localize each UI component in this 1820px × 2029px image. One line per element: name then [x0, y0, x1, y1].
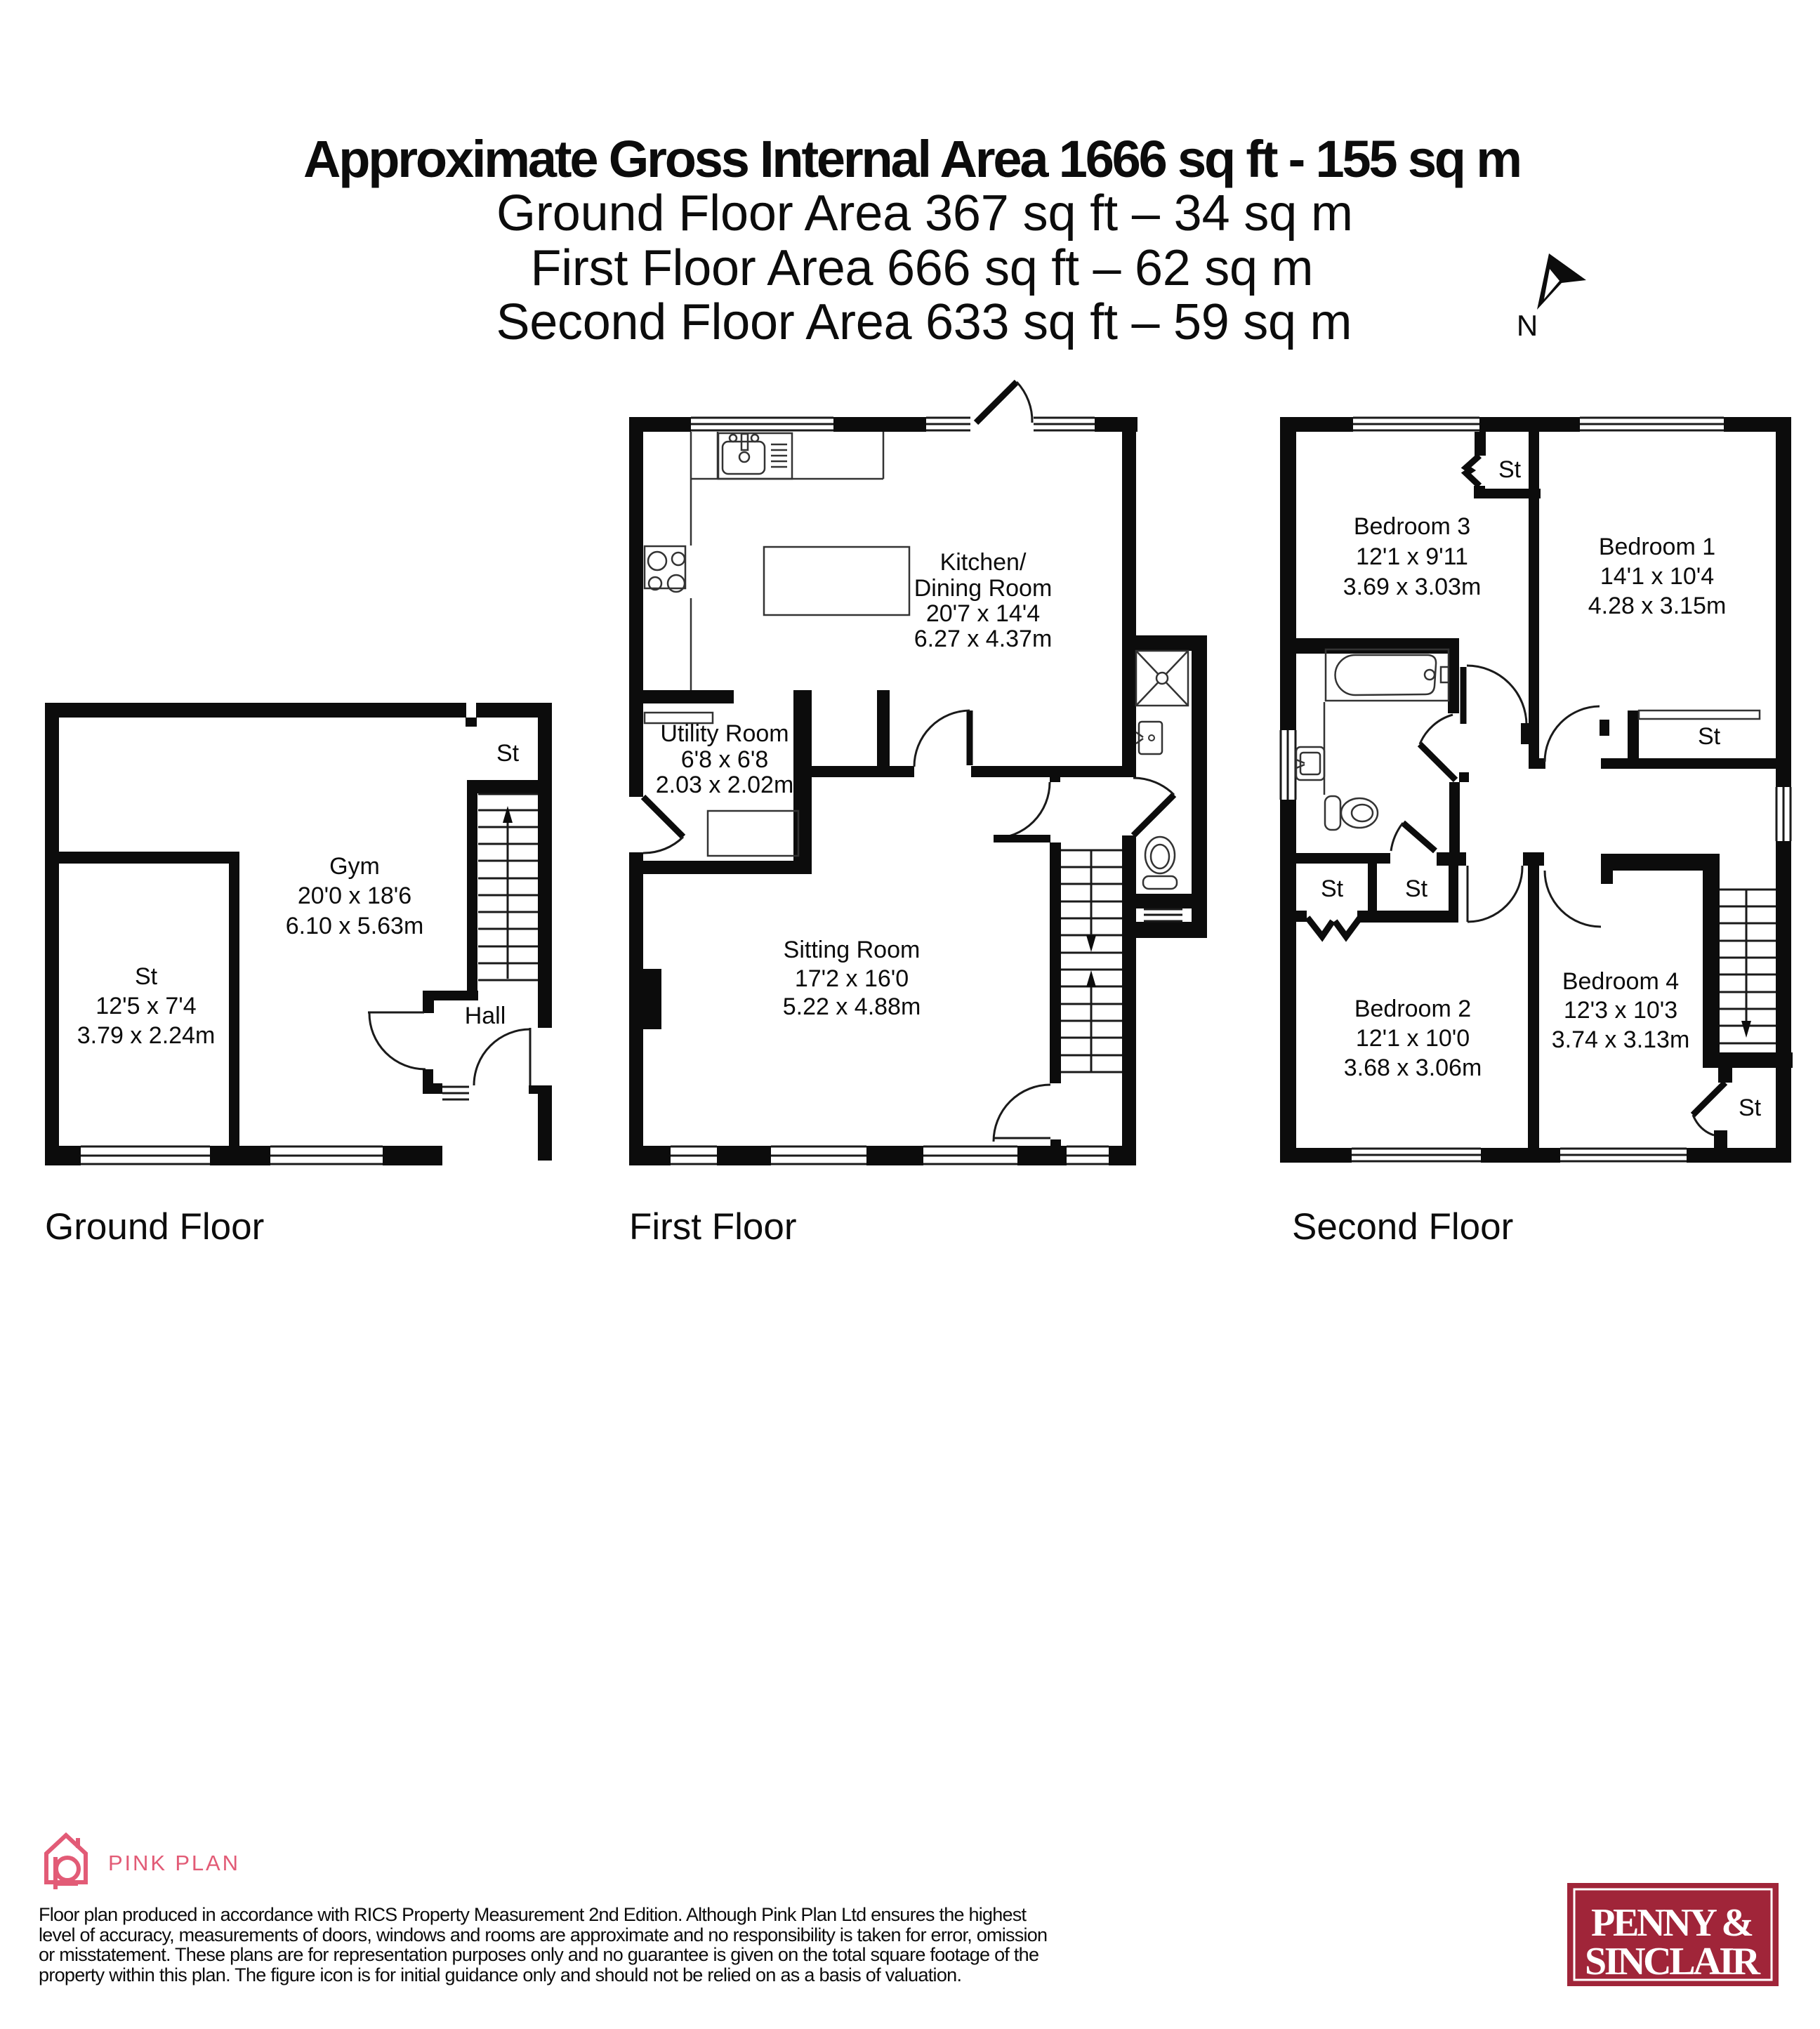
svg-text:3.79 x 2.24m: 3.79 x 2.24m — [77, 1022, 216, 1049]
svg-text:PINK PLAN: PINK PLAN — [108, 1851, 244, 1875]
svg-text:St: St — [1321, 875, 1344, 902]
svg-text:3.69 x 3.03m: 3.69 x 3.03m — [1343, 574, 1482, 600]
svg-text:St: St — [1498, 456, 1522, 483]
svg-text:5.22 x 4.88m: 5.22 x 4.88m — [783, 993, 921, 1020]
svg-text:St: St — [135, 963, 158, 990]
svg-text:12'3 x 10'3: 12'3 x 10'3 — [1564, 997, 1677, 1024]
svg-text:level of accuracy, measurement: level of accuracy, measurements of doors… — [39, 1924, 1048, 1945]
svg-text:Sitting Room: Sitting Room — [784, 937, 921, 963]
svg-text:12'5 x 7'4: 12'5 x 7'4 — [95, 993, 196, 1019]
svg-text:17'2 x 16'0: 17'2 x 16'0 — [795, 965, 909, 992]
svg-text:First Floor: First Floor — [629, 1206, 797, 1248]
svg-text:3.74 x 3.13m: 3.74 x 3.13m — [1552, 1026, 1690, 1053]
svg-text:Bedroom 4: Bedroom 4 — [1562, 968, 1679, 995]
svg-text:N: N — [1517, 309, 1538, 342]
svg-text:12'1 x 10'0: 12'1 x 10'0 — [1356, 1025, 1470, 1052]
svg-text:12'1 x 9'11: 12'1 x 9'11 — [1356, 543, 1468, 570]
svg-text:PENNY &: PENNY & — [1591, 1901, 1754, 1945]
svg-text:Bedroom 2: Bedroom 2 — [1354, 996, 1471, 1022]
svg-text:2.03 x 2.02m: 2.03 x 2.02m — [656, 772, 794, 798]
svg-text:Ground Floor: Ground Floor — [45, 1206, 264, 1248]
svg-text:Second Floor: Second Floor — [1292, 1206, 1513, 1248]
svg-text:Hall: Hall — [465, 1003, 506, 1029]
svg-text:Bedroom 3: Bedroom 3 — [1354, 513, 1470, 540]
svg-text:Bedroom 1: Bedroom 1 — [1599, 534, 1715, 560]
svg-text:Utility Room: Utility Room — [660, 720, 789, 747]
svg-text:6'8 x 6'8: 6'8 x 6'8 — [681, 746, 769, 773]
svg-text:Dining Room: Dining Room — [914, 575, 1053, 602]
svg-text:6.27 x 4.37m: 6.27 x 4.37m — [914, 626, 1053, 652]
svg-text:4.28 x 3.15m: 4.28 x 3.15m — [1588, 593, 1727, 619]
svg-text:property within this plan. The: property within this plan. The figure ic… — [39, 1964, 962, 1985]
svg-text:20'0 x 18'6: 20'0 x 18'6 — [298, 883, 411, 909]
svg-text:6.10 x 5.63m: 6.10 x 5.63m — [286, 913, 424, 939]
svg-text:or misstatement. These plans a: or misstatement. These plans are for rep… — [39, 1944, 1039, 1965]
svg-text:Kitchen/: Kitchen/ — [940, 549, 1027, 576]
svg-text:3.68 x 3.06m: 3.68 x 3.06m — [1344, 1055, 1482, 1081]
svg-text:Gym: Gym — [329, 853, 380, 880]
svg-text:20'7 x 14'4: 20'7 x 14'4 — [926, 600, 1040, 627]
svg-text:St: St — [1698, 723, 1721, 750]
svg-text:SINCLAIR: SINCLAIR — [1585, 1940, 1761, 1983]
svg-text:St: St — [1405, 875, 1428, 902]
svg-text:First Floor Area 666 sq ft – 6: First Floor Area 666 sq ft – 62 sq m — [531, 240, 1314, 296]
svg-text:14'1 x 10'4: 14'1 x 10'4 — [1600, 563, 1714, 590]
svg-text:Approximate Gross Internal Are: Approximate Gross Internal Area 1666 sq … — [303, 130, 1522, 188]
svg-text:St: St — [496, 740, 520, 767]
svg-text:St: St — [1739, 1095, 1762, 1121]
svg-text:Second Floor Area 633 sq ft –: Second Floor Area 633 sq ft – 59 sq m — [496, 294, 1352, 350]
svg-text:Floor plan produced in accorda: Floor plan produced in accordance with R… — [39, 1904, 1027, 1925]
svg-text:Ground Floor Area 367 sq ft –: Ground Floor Area 367 sq ft – 34 sq m — [496, 185, 1353, 242]
